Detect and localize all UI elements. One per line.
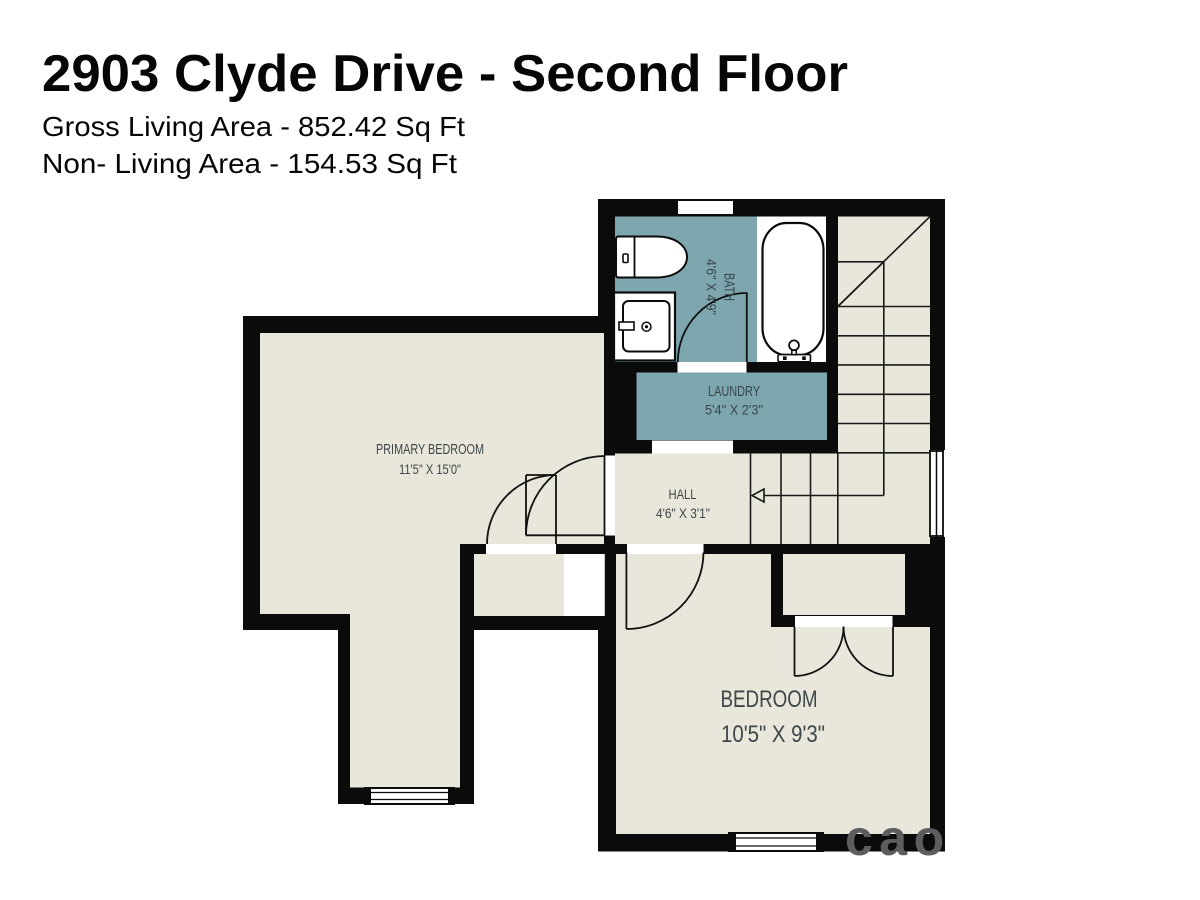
svg-text:HALL: HALL	[669, 486, 697, 502]
svg-text:4'6" X 3'1": 4'6" X 3'1"	[656, 505, 710, 521]
svg-text:LAUNDRY: LAUNDRY	[708, 383, 760, 400]
svg-text:4'6" X 4'9": 4'6" X 4'9"	[704, 259, 720, 315]
svg-text:Gross Living Area - 852.42 Sq: Gross Living Area - 852.42 Sq Ft	[42, 111, 465, 142]
svg-text:10'5" X 9'3": 10'5" X 9'3"	[721, 721, 825, 748]
svg-text:2903 Clyde Drive - Second Floo: 2903 Clyde Drive - Second Floor	[42, 45, 848, 103]
svg-text:Non- Living Area - 154.53 Sq F: Non- Living Area - 154.53 Sq Ft	[42, 148, 457, 179]
svg-text:cao: cao	[845, 810, 951, 866]
svg-text:BEDROOM: BEDROOM	[721, 686, 818, 713]
svg-text:11'5" X 15'0": 11'5" X 15'0"	[399, 461, 461, 477]
svg-text:PRIMARY BEDROOM: PRIMARY BEDROOM	[376, 441, 484, 458]
svg-text:5'4" X 2'3": 5'4" X 2'3"	[705, 402, 763, 418]
svg-text:BATH: BATH	[721, 273, 738, 301]
